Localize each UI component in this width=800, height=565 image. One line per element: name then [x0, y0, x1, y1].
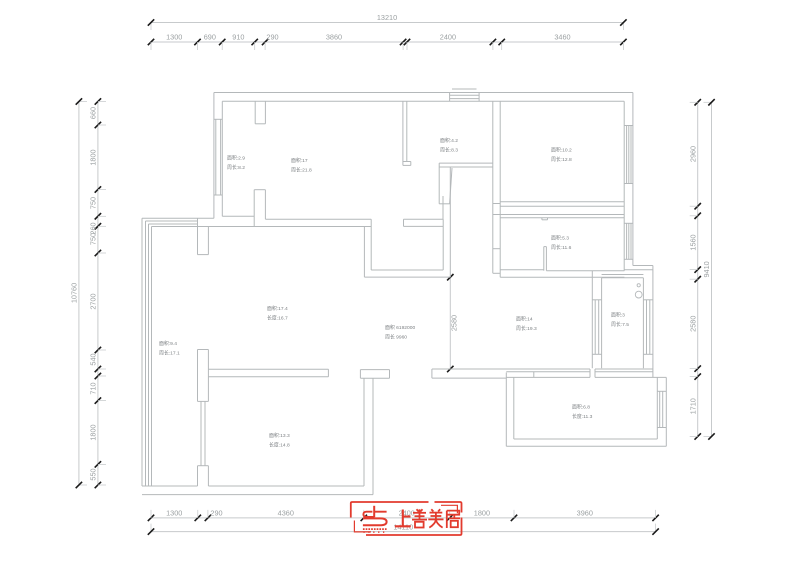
- svg-text:290: 290: [266, 33, 278, 42]
- svg-text:面积:6.8: 面积:6.8: [572, 404, 590, 411]
- svg-text:面积:17: 面积:17: [291, 157, 308, 164]
- svg-text:750: 750: [89, 233, 98, 245]
- svg-text:2700: 2700: [89, 293, 98, 309]
- svg-text:710: 710: [89, 382, 98, 394]
- svg-text:550: 550: [89, 468, 98, 480]
- svg-text:4360: 4360: [278, 509, 294, 518]
- svg-text:1800: 1800: [474, 509, 490, 518]
- svg-text:周长:8.2: 周长:8.2: [227, 164, 245, 171]
- svg-text:周长:17.1: 周长:17.1: [159, 350, 180, 357]
- svg-text:面积:4.2: 面积:4.2: [440, 137, 458, 144]
- svg-text:2960: 2960: [688, 146, 697, 162]
- svg-text:910: 910: [232, 33, 244, 42]
- svg-text:周长:21.8: 周长:21.8: [291, 167, 312, 174]
- svg-text:面积:17.4: 面积:17.4: [267, 305, 288, 312]
- svg-text:周长:7.5: 周长:7.5: [611, 321, 629, 328]
- svg-text:面积:13.3: 面积:13.3: [269, 432, 290, 439]
- svg-text:面积:2.9: 面积:2.9: [227, 155, 245, 162]
- svg-text:2580: 2580: [450, 315, 459, 331]
- svg-text:10760: 10760: [70, 283, 79, 303]
- svg-text:周长:8.3: 周长:8.3: [440, 147, 458, 154]
- svg-text:690: 690: [204, 33, 216, 42]
- svg-text:1300: 1300: [166, 509, 182, 518]
- svg-text:长度:14.8: 长度:14.8: [269, 442, 290, 449]
- svg-text:750: 750: [89, 197, 98, 209]
- svg-text:1800: 1800: [89, 149, 98, 165]
- svg-text:2400: 2400: [440, 33, 456, 42]
- svg-text:面积:3: 面积:3: [611, 312, 625, 319]
- svg-text:1300: 1300: [166, 33, 182, 42]
- svg-text:3960: 3960: [577, 509, 593, 518]
- svg-text:290: 290: [210, 509, 222, 518]
- svg-text:3460: 3460: [554, 33, 570, 42]
- svg-text:260: 260: [89, 222, 98, 234]
- svg-text:面积 6192000: 面积 6192000: [385, 324, 415, 331]
- svg-text:面积:5.3: 面积:5.3: [551, 235, 569, 242]
- svg-text:1800: 1800: [89, 424, 98, 440]
- svg-text:面积:10.2: 面积:10.2: [551, 147, 572, 154]
- svg-text:660: 660: [89, 107, 98, 119]
- svg-text:13210: 13210: [377, 13, 397, 22]
- svg-text:2580: 2580: [688, 316, 697, 332]
- svg-text:面积:14: 面积:14: [516, 316, 533, 323]
- svg-text:面积:9.4: 面积:9.4: [159, 340, 177, 347]
- svg-text:1560: 1560: [688, 234, 697, 250]
- svg-text:周长:19.3: 周长:19.3: [516, 325, 537, 332]
- svg-text:周长 9960: 周长 9960: [385, 334, 407, 341]
- svg-text:9410: 9410: [702, 261, 711, 277]
- svg-text:3860: 3860: [326, 33, 342, 42]
- svg-text:周长:12.8: 周长:12.8: [551, 156, 572, 163]
- svg-text:周长:11.6: 周长:11.6: [551, 244, 572, 251]
- svg-text:长度:11.3: 长度:11.3: [572, 413, 593, 420]
- svg-text:长度:16.7: 长度:16.7: [267, 315, 288, 322]
- svg-text:1710: 1710: [688, 398, 697, 414]
- svg-text:540: 540: [89, 353, 98, 365]
